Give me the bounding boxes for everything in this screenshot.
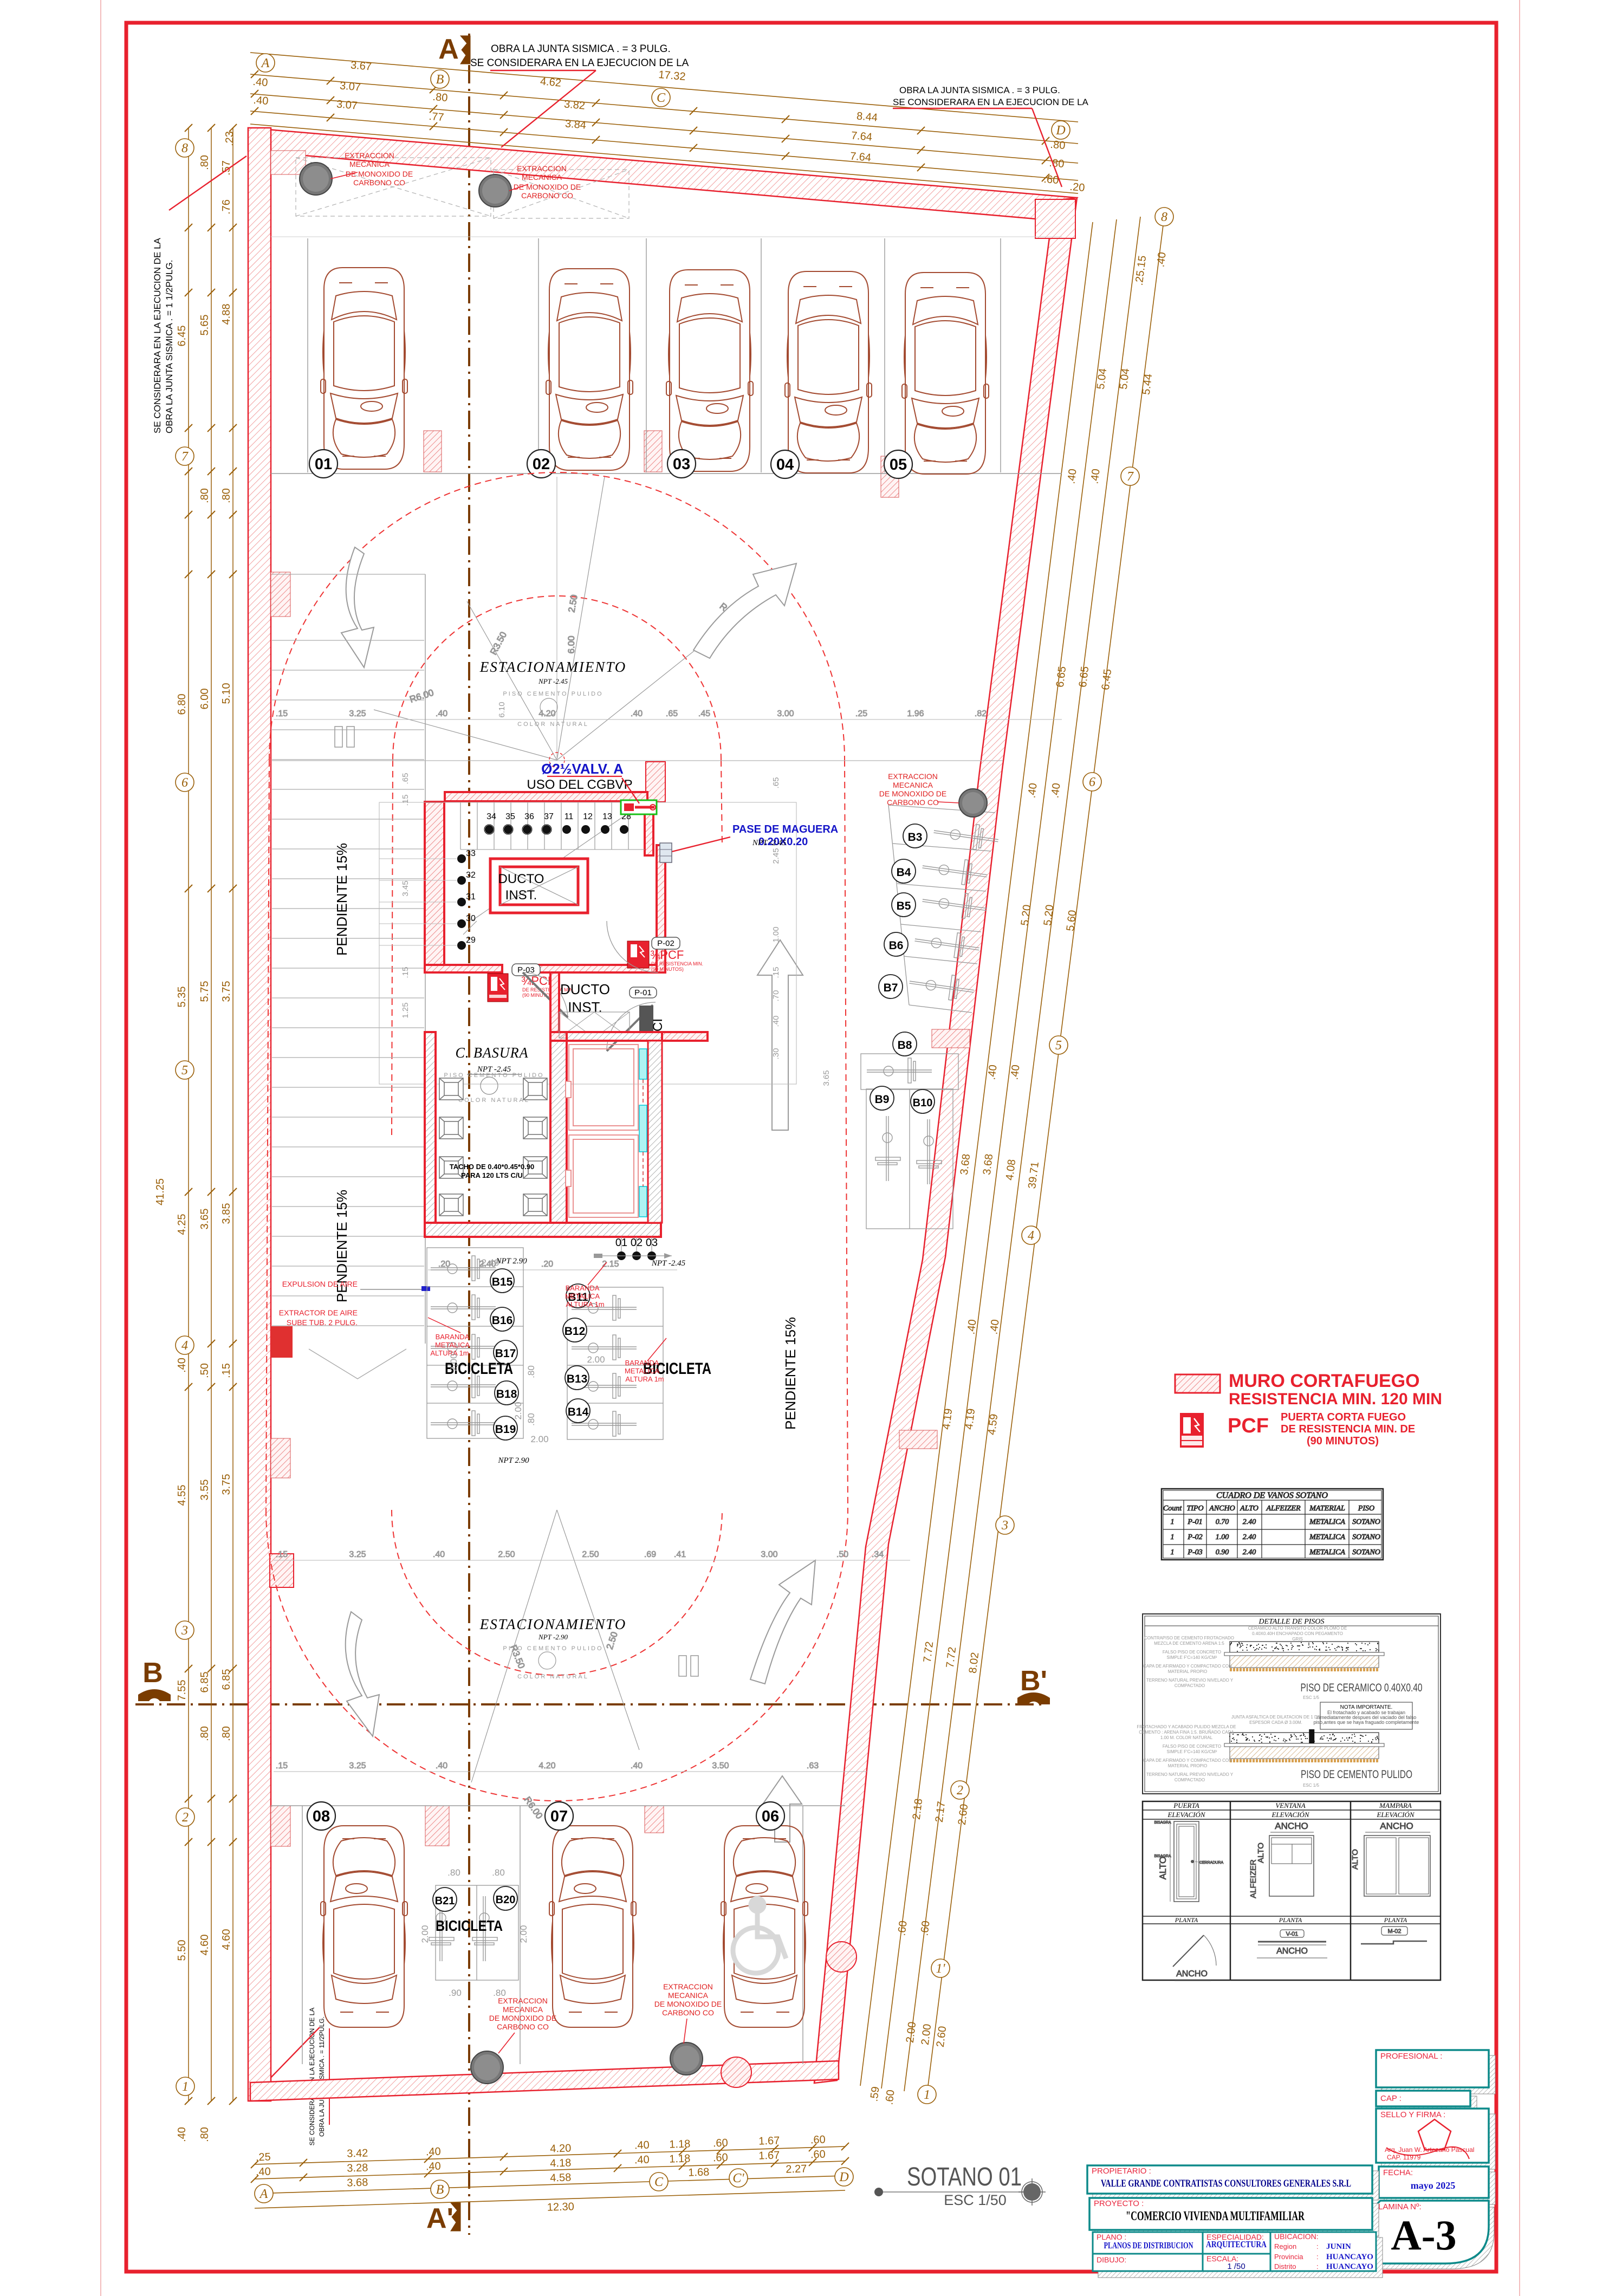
- svg-text:29: 29: [466, 936, 476, 945]
- svg-text:MECANICA: MECANICA: [668, 1991, 709, 2000]
- svg-text:.40: .40: [985, 1064, 999, 1080]
- svg-text:CARBONO CO: CARBONO CO: [497, 2022, 549, 2031]
- svg-text:.34: .34: [872, 1550, 884, 1559]
- svg-text:6.00: 6.00: [199, 689, 211, 710]
- svg-text:EXTRACCION: EXTRACCION: [498, 1996, 548, 2005]
- svg-text:.40: .40: [436, 1761, 447, 1770]
- svg-text:MURO CORTAFUEGO: MURO CORTAFUEGO: [1229, 1371, 1420, 1391]
- svg-text:PISO DE CEMENTO PULIDO: PISO DE CEMENTO PULIDO: [1301, 1768, 1412, 1781]
- svg-text:SOTANO: SOTANO: [1352, 1518, 1380, 1526]
- svg-text:.50: .50: [836, 1550, 848, 1559]
- svg-text:3: 3: [1001, 1519, 1008, 1533]
- svg-text:.40: .40: [253, 94, 269, 107]
- svg-text:P-03: P-03: [517, 965, 535, 975]
- svg-text:.40: .40: [433, 1550, 445, 1559]
- svg-text:MECANICA: MECANICA: [522, 173, 562, 181]
- svg-text::: :: [1316, 2262, 1319, 2271]
- svg-text:D: D: [1055, 124, 1065, 138]
- svg-text:PROYECTO :: PROYECTO :: [1094, 2199, 1144, 2208]
- svg-text:4.20: 4.20: [550, 2142, 572, 2155]
- svg-text:6.45: 6.45: [1100, 669, 1114, 691]
- svg-text:2: 2: [182, 1811, 189, 1825]
- svg-text:B13: B13: [567, 1373, 588, 1385]
- svg-text:.60: .60: [883, 2089, 897, 2105]
- svg-text:6.85: 6.85: [220, 1669, 232, 1690]
- svg-text:4.25: 4.25: [176, 1214, 188, 1235]
- svg-text:3.75: 3.75: [220, 1474, 232, 1495]
- svg-text:B9: B9: [875, 1093, 890, 1106]
- svg-text:Region: Region: [1274, 2242, 1296, 2250]
- svg-text:CONTRAPISO DE CEMENTO FROTACHA: CONTRAPISO DE CEMENTO FROTACHADO: [1144, 1636, 1234, 1640]
- svg-text:CAP :: CAP :: [1380, 2094, 1402, 2103]
- svg-text:5.04: 5.04: [1118, 368, 1132, 390]
- svg-text:A: A: [261, 56, 270, 70]
- svg-text:ALTO: ALTO: [1158, 1857, 1168, 1880]
- svg-text:Arq. Juan W. Artezano Pascual: Arq. Juan W. Artezano Pascual: [1385, 2146, 1474, 2154]
- svg-text:3.68: 3.68: [958, 1153, 973, 1176]
- svg-text:B17: B17: [495, 1347, 516, 1360]
- svg-text:C. BASURA: C. BASURA: [456, 1045, 529, 1061]
- svg-text:FALSO PISO DE CONCRETO: FALSO PISO DE CONCRETO: [1163, 1650, 1221, 1655]
- svg-text:4.19: 4.19: [940, 1408, 955, 1430]
- svg-text:DIBUJO:: DIBUJO:: [1097, 2255, 1126, 2264]
- svg-text:4.88: 4.88: [220, 304, 232, 325]
- svg-text:2.40: 2.40: [1243, 1548, 1256, 1556]
- svg-text:.40: .40: [426, 2161, 441, 2173]
- svg-text:B18: B18: [496, 1388, 517, 1400]
- svg-text:PISO CEMENTO PULIDO: PISO CEMENTO PULIDO: [444, 1072, 544, 1079]
- svg-text:DUCTO: DUCTO: [498, 872, 544, 886]
- svg-text:PROPIETARIO :: PROPIETARIO :: [1092, 2167, 1151, 2176]
- svg-text:2.60: 2.60: [935, 2026, 949, 2048]
- svg-text:06: 06: [762, 1808, 779, 1825]
- svg-text:A': A': [426, 2203, 453, 2234]
- svg-text:.20: .20: [541, 1260, 553, 1269]
- svg-text:7.72: 7.72: [922, 1641, 936, 1663]
- svg-text:B10: B10: [913, 1097, 933, 1109]
- svg-text:.40: .40: [426, 2146, 441, 2158]
- svg-text:NPT -2.45: NPT -2.45: [538, 677, 568, 685]
- svg-text:SOTANO: SOTANO: [1352, 1548, 1380, 1556]
- svg-text:3.82: 3.82: [563, 98, 586, 112]
- svg-text:(90 MINUTOS): (90 MINUTOS): [1307, 1435, 1379, 1447]
- svg-text:EXTRACTOR DE AIRE: EXTRACTOR DE AIRE: [279, 1308, 358, 1317]
- svg-text:PLANOS DE DISTRIBUCION: PLANOS DE DISTRIBUCION: [1104, 2240, 1194, 2250]
- svg-text:piso,antes que se haya fraguad: piso,antes que se haya fraguado completa…: [1314, 1720, 1419, 1725]
- svg-text:A-3: A-3: [1391, 2211, 1456, 2259]
- svg-text:2.17: 2.17: [933, 1801, 948, 1823]
- svg-text:.80: .80: [492, 1867, 505, 1878]
- svg-text:CAPA DE AFIRMADO Y COMPACTADO: CAPA DE AFIRMADO Y COMPACTADO CON: [1143, 1758, 1232, 1763]
- svg-text:.80: .80: [199, 2127, 211, 2142]
- svg-text:(90 MINUTOS): (90 MINUTOS): [651, 967, 684, 972]
- svg-text:ESC 1/5: ESC 1/5: [1303, 1695, 1319, 1700]
- svg-text:.69: .69: [644, 1550, 656, 1559]
- svg-text:ANCHO: ANCHO: [1176, 1969, 1208, 1979]
- svg-text:1': 1': [936, 1962, 945, 1976]
- svg-text:01: 01: [315, 456, 332, 473]
- svg-text:.40: .40: [631, 709, 643, 718]
- svg-text:B: B: [436, 73, 444, 87]
- svg-text:3.25: 3.25: [349, 709, 366, 718]
- svg-text:B20: B20: [496, 1894, 516, 1906]
- svg-text:.80: .80: [526, 1365, 536, 1378]
- svg-text:.15: .15: [220, 1363, 232, 1378]
- svg-text:2.50: 2.50: [498, 1550, 515, 1559]
- svg-text:.45: .45: [698, 709, 710, 718]
- svg-text:P-01: P-01: [1187, 1518, 1202, 1526]
- svg-text:BARANDA: BARANDA: [566, 1284, 600, 1292]
- svg-text:5.65: 5.65: [199, 315, 211, 336]
- svg-text:PROFESIONAL :: PROFESIONAL :: [1380, 2052, 1442, 2061]
- svg-text:04: 04: [776, 456, 794, 474]
- svg-text:C': C': [732, 2171, 744, 2185]
- svg-text:.40: .40: [252, 76, 269, 89]
- svg-text:MEZCLA DE CEMENTO ARENA 1:5: MEZCLA DE CEMENTO ARENA 1:5: [1154, 1641, 1224, 1646]
- svg-text:LAMINA Nº:: LAMINA Nº:: [1378, 2202, 1422, 2211]
- svg-text:.60: .60: [713, 2152, 728, 2164]
- svg-text:.40: .40: [634, 2139, 650, 2152]
- svg-text:.60: .60: [918, 1920, 932, 1936]
- svg-text:CARBONO CO: CARBONO CO: [887, 798, 939, 807]
- svg-text:0.40X0.40H ENCHAPADO CON PEGAM: 0.40X0.40H ENCHAPADO CON PEGAMENTO: [1252, 1631, 1343, 1636]
- svg-text:INST.: INST.: [505, 888, 537, 903]
- svg-text:"COMERCIO VIVIENDA MULTIFAMILI: "COMERCIO VIVIENDA MULTIFAMILIAR: [1126, 2209, 1305, 2223]
- svg-text:3.68: 3.68: [347, 2176, 368, 2189]
- svg-text:SIMPLE F'C=140 KG/CM²: SIMPLE F'C=140 KG/CM²: [1167, 1655, 1217, 1660]
- svg-text:COMPACTADO: COMPACTADO: [1175, 1683, 1205, 1688]
- svg-text:.76: .76: [220, 199, 232, 215]
- svg-text:4.08: 4.08: [1004, 1159, 1018, 1181]
- svg-text:PUERTA: PUERTA: [1173, 1801, 1199, 1809]
- svg-text:B5: B5: [897, 900, 911, 912]
- svg-text:1.18: 1.18: [669, 2152, 691, 2165]
- svg-text:COLOR NATURAL: COLOR NATURAL: [517, 1674, 589, 1680]
- svg-text:.40: .40: [1026, 782, 1039, 799]
- svg-text::: :: [1316, 2242, 1319, 2250]
- svg-text:.23: .23: [224, 131, 236, 146]
- svg-text:SOTANO: SOTANO: [1352, 1533, 1380, 1541]
- svg-text:4.20: 4.20: [538, 1761, 555, 1770]
- svg-text:6.10: 6.10: [497, 702, 507, 717]
- svg-text:5: 5: [1055, 1039, 1062, 1053]
- svg-text:1.67: 1.67: [758, 2149, 780, 2162]
- svg-text:37: 37: [544, 812, 554, 821]
- svg-text:6.85: 6.85: [199, 1672, 211, 1693]
- svg-text:DUCTO: DUCTO: [560, 981, 610, 997]
- svg-text:COLOR NATURAL: COLOR NATURAL: [517, 721, 589, 728]
- svg-text:.65: .65: [771, 777, 781, 789]
- svg-text:NPT 2.90: NPT 2.90: [495, 1257, 527, 1266]
- svg-text:B: B: [436, 2183, 444, 2197]
- svg-text:1: 1: [1171, 1518, 1175, 1526]
- svg-text:PLANTA: PLANTA: [1279, 1916, 1302, 1924]
- svg-text:ARQUITECTURA: ARQUITECTURA: [1206, 2239, 1267, 2249]
- svg-text:30: 30: [466, 914, 476, 923]
- svg-text:4.55: 4.55: [176, 1485, 188, 1506]
- svg-text:2.40: 2.40: [1243, 1533, 1256, 1541]
- svg-text:DE MONOXIDO DE: DE MONOXIDO DE: [489, 2014, 556, 2022]
- svg-text:5: 5: [181, 1063, 188, 1078]
- svg-text:M-02: M-02: [1387, 1928, 1401, 1935]
- svg-text:.40: .40: [1008, 1064, 1022, 1080]
- svg-text:2.00: 2.00: [420, 1925, 430, 1943]
- svg-text:.40: .40: [1065, 468, 1079, 484]
- svg-text:1: 1: [1171, 1548, 1175, 1556]
- svg-text::: :: [1316, 2253, 1319, 2261]
- svg-text:5.75: 5.75: [199, 981, 211, 1002]
- svg-text:3.28: 3.28: [347, 2162, 368, 2174]
- svg-text:¾PCF: ¾PCF: [650, 948, 684, 962]
- svg-text:.80: .80: [1050, 139, 1066, 152]
- svg-text:BISAGRA: BISAGRA: [1154, 1854, 1171, 1858]
- svg-text:.60: .60: [896, 1920, 909, 1936]
- svg-text:METALICA: METALICA: [1309, 1518, 1345, 1526]
- svg-text:.40: .40: [176, 2127, 188, 2142]
- svg-text:CERAMICO ALTO TRANSITO COLOR P: CERAMICO ALTO TRANSITO COLOR PLOMO DE: [1248, 1626, 1347, 1631]
- svg-text:.50: .50: [199, 1363, 211, 1378]
- svg-text:D: D: [839, 2170, 848, 2184]
- svg-text:MATERIAL PROPIO: MATERIAL PROPIO: [1168, 1669, 1207, 1674]
- svg-text:3.67: 3.67: [350, 59, 372, 73]
- svg-text:PCF: PCF: [1228, 1415, 1269, 1437]
- svg-text:7.64: 7.64: [851, 129, 873, 143]
- svg-text:CUADRO DE VANOS SOTANO: CUADRO DE VANOS SOTANO: [1216, 1491, 1328, 1500]
- svg-text:3.55: 3.55: [199, 1480, 211, 1501]
- svg-text:.40: .40: [256, 2166, 271, 2178]
- svg-text:DE MONOXIDO DE: DE MONOXIDO DE: [879, 789, 946, 798]
- svg-text:MECANICA: MECANICA: [349, 160, 390, 168]
- svg-text:4.60: 4.60: [220, 1929, 232, 1950]
- svg-text:SIMPLE F'C=140 KG/CM²: SIMPLE F'C=140 KG/CM²: [1167, 1749, 1217, 1754]
- svg-text:JUNTA ASFALTICA DE DILATACION: JUNTA ASFALTICA DE DILATACION DE 1 DE: [1231, 1715, 1320, 1720]
- svg-text:SE CONSIDERARA EN LA EJECUCION: SE CONSIDERARA EN LA EJECUCION DE LA: [470, 57, 689, 69]
- svg-text:8.02: 8.02: [967, 1652, 982, 1674]
- svg-text:6.80: 6.80: [176, 694, 188, 715]
- svg-text:METALICA: METALICA: [435, 1341, 470, 1349]
- svg-text:SE CONSIDERARA EN LA EJECUCION: SE CONSIDERARA EN LA EJECUCION DE LA: [152, 237, 163, 433]
- svg-text:B21: B21: [435, 1895, 455, 1907]
- svg-text:P-02: P-02: [657, 939, 674, 948]
- svg-text:PISO CEMENTO PULIDO: PISO CEMENTO PULIDO: [503, 1645, 603, 1652]
- svg-text:ESC 1/50: ESC 1/50: [944, 2192, 1007, 2208]
- svg-text:ESTACIONAMIENTO: ESTACIONAMIENTO: [479, 659, 627, 675]
- svg-text:03: 03: [646, 1237, 658, 1249]
- svg-text:EXTRACCION: EXTRACCION: [663, 1982, 713, 1991]
- svg-text:5.60: 5.60: [1065, 910, 1079, 932]
- svg-text:PLANTA: PLANTA: [1384, 1916, 1407, 1924]
- svg-text:P-02: P-02: [1187, 1533, 1202, 1541]
- svg-text:DETALLE DE PISOS: DETALLE DE PISOS: [1258, 1618, 1324, 1626]
- svg-text:3.84: 3.84: [565, 118, 587, 131]
- svg-text:SUBE TUB. 2 PULG.: SUBE TUB. 2 PULG.: [287, 1318, 358, 1327]
- svg-text:PARA 120 LTS C/U: PARA 120 LTS C/U: [461, 1171, 523, 1179]
- svg-text:PENDIENTE 15%: PENDIENTE 15%: [334, 843, 350, 956]
- svg-text:.40: .40: [1049, 782, 1062, 799]
- svg-text:3.68: 3.68: [981, 1153, 996, 1176]
- svg-text:VENTANA: VENTANA: [1275, 1801, 1305, 1809]
- svg-text:TERRENO NATURAL PREVIO NIVELAD: TERRENO NATURAL PREVIO NIVELADO Y: [1146, 1678, 1234, 1683]
- svg-text:Distrito: Distrito: [1274, 2262, 1296, 2271]
- svg-text:7.55: 7.55: [176, 1680, 188, 1701]
- svg-text:C: C: [654, 2175, 664, 2189]
- svg-text:B14: B14: [568, 1406, 589, 1418]
- svg-text:.65: .65: [666, 709, 678, 718]
- svg-text:2.00: 2.00: [518, 1925, 529, 1943]
- svg-text:02: 02: [631, 1237, 643, 1249]
- svg-text:EXTRACCION: EXTRACCION: [517, 164, 567, 173]
- svg-text:CARBONO CO: CARBONO CO: [662, 2008, 714, 2017]
- svg-text:.80: .80: [220, 1726, 232, 1741]
- svg-text:3.65: 3.65: [822, 1070, 831, 1086]
- svg-text:.41: .41: [674, 1550, 686, 1559]
- svg-text:1: 1: [182, 2080, 189, 2094]
- svg-text:Ø2½VALV. A: Ø2½VALV. A: [541, 761, 624, 777]
- svg-text:PASE DE MAGUERA: PASE DE MAGUERA: [732, 823, 838, 835]
- svg-text:1.67: 1.67: [758, 2135, 780, 2147]
- svg-text:UBICACION:: UBICACION:: [1274, 2232, 1319, 2241]
- svg-text:.15: .15: [771, 967, 781, 978]
- svg-text:.80: .80: [432, 91, 449, 104]
- svg-text:SE CONSIDERARA EN LA EJECUCION: SE CONSIDERARA EN LA EJECUCION DE LA: [308, 2008, 316, 2146]
- svg-text:ALFEIZER: ALFEIZER: [1266, 1504, 1301, 1513]
- svg-text:B12: B12: [565, 1325, 586, 1338]
- svg-text:.40: .40: [436, 709, 447, 718]
- svg-text:2.40: 2.40: [1243, 1518, 1256, 1526]
- svg-text:PISO DE CERAMICO 0.40X0.40: PISO DE CERAMICO 0.40X0.40: [1301, 1682, 1423, 1694]
- svg-text:B4: B4: [897, 866, 911, 879]
- svg-text:3.25: 3.25: [349, 1761, 366, 1770]
- svg-text:2.27: 2.27: [786, 2163, 807, 2175]
- svg-text:ALTO: ALTO: [1240, 1504, 1258, 1513]
- svg-text:5.10: 5.10: [220, 683, 232, 704]
- svg-text:ANCHO: ANCHO: [1276, 1947, 1308, 1956]
- svg-text:Count: Count: [1163, 1504, 1182, 1513]
- svg-text:3.07: 3.07: [339, 80, 361, 93]
- svg-text:.77: .77: [429, 111, 445, 124]
- svg-text:7.72: 7.72: [944, 1646, 959, 1669]
- svg-text:5.20: 5.20: [1042, 904, 1056, 926]
- svg-text:.60: .60: [810, 2134, 826, 2146]
- svg-text:5.50: 5.50: [176, 1940, 188, 1961]
- svg-text:1.00 M. COLOR NATURAL: 1.00 M. COLOR NATURAL: [1160, 1735, 1213, 1740]
- svg-text:INST.: INST.: [568, 999, 602, 1015]
- svg-text:6.65: 6.65: [1054, 666, 1069, 688]
- svg-text:34: 34: [486, 812, 496, 821]
- svg-text:P-01: P-01: [634, 988, 652, 997]
- svg-text:1.96: 1.96: [907, 709, 924, 718]
- svg-text:.80: .80: [220, 488, 232, 503]
- svg-text:MATERIAL PROPIO: MATERIAL PROPIO: [1168, 1763, 1207, 1768]
- svg-text:4.59: 4.59: [986, 1413, 1001, 1436]
- svg-text:5.35: 5.35: [176, 987, 188, 1008]
- svg-text:A: A: [259, 2187, 268, 2201]
- svg-text:P-03: P-03: [1187, 1548, 1202, 1556]
- svg-text:6.00: 6.00: [566, 635, 576, 653]
- svg-text:EXTRACCION: EXTRACCION: [345, 151, 394, 160]
- svg-text:.90: .90: [449, 1988, 462, 1998]
- svg-text:DE MONOXIDO DE: DE MONOXIDO DE: [346, 170, 413, 178]
- svg-text:ALFEIZER: ALFEIZER: [1249, 1859, 1258, 1898]
- svg-text:TACHO DE 0.40*0.45*0.90: TACHO DE 0.40*0.45*0.90: [450, 1163, 535, 1171]
- svg-text:FROTACHADO Y ACABADO PULIDO ME: FROTACHADO Y ACABADO PULIDO MEZCLA DE: [1137, 1724, 1236, 1729]
- svg-text:PENDIENTE 15%: PENDIENTE 15%: [782, 1317, 799, 1430]
- svg-text:EXPULSION DE AIRE: EXPULSION DE AIRE: [282, 1280, 358, 1288]
- svg-text:4.19: 4.19: [963, 1408, 978, 1430]
- svg-text:NPT -2.45: NPT -2.45: [651, 1259, 686, 1268]
- svg-text:7.64: 7.64: [849, 150, 872, 164]
- svg-text:1.18: 1.18: [669, 2138, 691, 2150]
- svg-text:2.00: 2.00: [904, 2021, 919, 2044]
- svg-text:GRIS: GRIS: [1292, 1637, 1303, 1642]
- svg-text:1.25: 1.25: [401, 1002, 410, 1018]
- svg-text:DE MONOXIDO DE: DE MONOXIDO DE: [654, 2000, 722, 2008]
- svg-text:.80: .80: [199, 488, 211, 503]
- svg-text:.80: .80: [447, 1867, 460, 1878]
- svg-text:1.00: 1.00: [771, 926, 781, 942]
- svg-text:A: A: [438, 34, 459, 65]
- svg-text:1: 1: [924, 2088, 930, 2102]
- svg-text:.25: .25: [855, 709, 867, 718]
- svg-text:.40: .40: [1088, 468, 1102, 484]
- svg-text:32: 32: [466, 871, 476, 880]
- svg-text:B: B: [142, 1657, 163, 1689]
- svg-text:.40: .40: [988, 1319, 1001, 1335]
- svg-text:01: 01: [615, 1237, 627, 1249]
- svg-text:ELEVACIÓN: ELEVACIÓN: [1271, 1811, 1309, 1819]
- svg-text:ALTURA 1m: ALTURA 1m: [566, 1300, 604, 1308]
- svg-text:B19: B19: [495, 1423, 516, 1436]
- svg-text:08: 08: [313, 1808, 330, 1825]
- svg-text:07: 07: [550, 1808, 568, 1825]
- svg-text:3.65: 3.65: [199, 1209, 211, 1230]
- svg-text:.40: .40: [965, 1319, 978, 1335]
- svg-text:METALICA: METALICA: [625, 1367, 659, 1375]
- svg-text:CAPA DE AFIRMADO Y COMPACTADO: CAPA DE AFIRMADO Y COMPACTADO CON: [1143, 1664, 1232, 1669]
- svg-text:1.68: 1.68: [688, 2166, 710, 2178]
- svg-text:ANCHO: ANCHO: [1209, 1504, 1235, 1513]
- svg-text:3.85: 3.85: [220, 1203, 232, 1224]
- svg-text:6: 6: [1089, 775, 1095, 789]
- svg-text:.82: .82: [975, 709, 987, 718]
- svg-text:VALLE GRANDE CONTRATISTAS CONS: VALLE GRANDE CONTRATISTAS CONSULTORES GE…: [1101, 2178, 1351, 2189]
- svg-text:JUNIN: JUNIN: [1326, 2242, 1351, 2251]
- svg-text:2: 2: [957, 1783, 963, 1798]
- svg-text:4.58: 4.58: [550, 2171, 572, 2184]
- svg-text:HUANCAYO: HUANCAYO: [1326, 2253, 1373, 2261]
- svg-text:BARANDA: BARANDA: [625, 1359, 659, 1367]
- svg-text:METALICA: METALICA: [1309, 1548, 1345, 1556]
- svg-text:11: 11: [565, 812, 574, 821]
- svg-text:B15: B15: [492, 1276, 513, 1288]
- svg-text:3.00: 3.00: [777, 709, 794, 718]
- svg-text:DE RESISTENCIA MIN.: DE RESISTENCIA MIN.: [651, 961, 703, 967]
- svg-text:ALTO: ALTO: [1351, 1849, 1360, 1870]
- svg-text:USO DEL CGBVP: USO DEL CGBVP: [527, 777, 632, 792]
- svg-text:.80: .80: [199, 155, 211, 170]
- svg-text:12: 12: [583, 812, 593, 821]
- svg-text:.80: .80: [199, 1726, 211, 1741]
- svg-text:ALTURA 1m: ALTURA 1m: [625, 1375, 664, 1383]
- svg-text:PUERTA CORTA FUEGO: PUERTA CORTA FUEGO: [1281, 1411, 1406, 1423]
- svg-text:4: 4: [181, 1339, 188, 1353]
- svg-text:MECANICA: MECANICA: [893, 781, 933, 789]
- svg-text:3.25: 3.25: [349, 1550, 366, 1559]
- svg-text:7: 7: [181, 450, 189, 464]
- svg-text:1: 1: [1171, 1533, 1175, 1541]
- svg-text:.40: .40: [176, 1358, 188, 1373]
- svg-text:ESC 1/5: ESC 1/5: [1303, 1783, 1319, 1788]
